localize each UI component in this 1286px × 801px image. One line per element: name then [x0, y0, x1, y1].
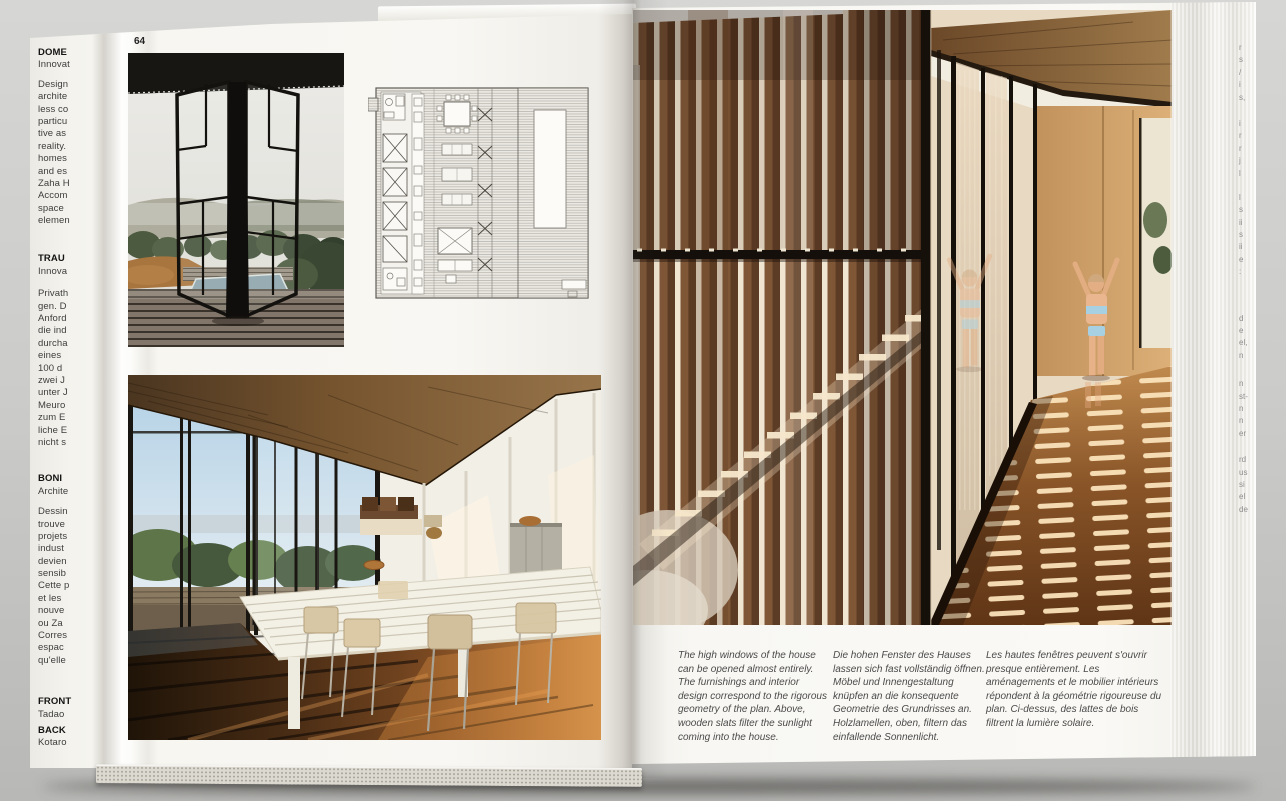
clipped-text-line: indust — [38, 543, 88, 555]
clipped-text-line: espac — [38, 642, 88, 654]
clipped-letter-fragment: e — [1239, 325, 1259, 337]
clipped-letter-fragment: s, — [1239, 92, 1259, 104]
clipped-text-line: Kotaro — [38, 737, 88, 749]
clipped-text-line: Dessin — [38, 506, 88, 518]
clipped-letter-fragment: r — [1239, 42, 1259, 54]
horizontal-rail — [633, 250, 925, 262]
clipped-text-line: BACK — [38, 725, 88, 737]
clipped-letter-fragment: j — [1239, 155, 1259, 167]
clipped-letter-fragment: rd — [1239, 454, 1259, 466]
clipped-letter-fragment: st- — [1239, 391, 1259, 403]
left-margin-clipped-text: DOMEInnovatDesignarchiteless coparticuti… — [38, 47, 88, 750]
left-page: DOMEInnovatDesignarchiteless coparticuti… — [30, 12, 632, 768]
clipped-text-line: and es — [38, 166, 88, 178]
clipped-text-line: Anford — [38, 313, 88, 325]
clipped-letter-fragment: er — [1239, 428, 1259, 440]
clipped-text-line: archite — [38, 91, 88, 103]
floor-plan-drawing — [368, 82, 602, 304]
clipped-text-line: homes — [38, 153, 88, 165]
left-door-frame — [177, 82, 229, 316]
caption-german: Die hohen Fenster des Hauses lassen sich… — [833, 649, 985, 744]
clipped-text-line: 100 d — [38, 363, 88, 375]
clipped-text-line: TRAU — [38, 253, 88, 265]
clipped-letter-fragment: si — [1239, 479, 1259, 491]
clipped-text-line: tive as — [38, 128, 88, 140]
clipped-text-line: Meuro — [38, 400, 88, 412]
kitchen-counter — [510, 516, 562, 579]
clipped-text-line: elemen — [38, 215, 88, 227]
clipped-letter-fragment: n — [1239, 350, 1259, 362]
caption-block: The high windows of the house can be ope… — [632, 649, 1256, 749]
clipped-text-line: Tadao — [38, 709, 88, 721]
caption-french: Les hautes fenêtres peuvent s'ouvrir pre… — [986, 649, 1162, 731]
clipped-text-line: space — [38, 203, 88, 215]
clipped-letter-fragment: el, — [1239, 337, 1259, 349]
clipped-text-line: Cette p — [38, 580, 88, 592]
clipped-text-line: et les — [38, 593, 88, 605]
right-edge-clipped-text: rs/is,irrjllsiisiie:deel,nnst-nnerrdussi… — [1239, 42, 1259, 516]
clipped-letter-fragment: r — [1239, 143, 1259, 155]
clipped-text-line: trouve — [38, 519, 88, 531]
clipped-text-line: Innova — [38, 266, 88, 278]
clipped-letter-fragment: de — [1239, 504, 1259, 516]
clipped-letter-fragment: s — [1239, 204, 1259, 216]
caption-english: The high windows of the house can be ope… — [678, 649, 830, 744]
clipped-text-line: less co — [38, 104, 88, 116]
clipped-text-line: qu'elle — [38, 655, 88, 667]
clipped-text-line: Corres — [38, 630, 88, 642]
clipped-letter-fragment: : — [1239, 266, 1259, 278]
clipped-letter-fragment: n — [1239, 378, 1259, 390]
book-spread: DOMEInnovatDesignarchiteless coparticuti… — [0, 0, 1286, 801]
clipped-letter-fragment: / — [1239, 67, 1259, 79]
clipped-text-line: particu — [38, 116, 88, 128]
clipped-text-line: reality. — [38, 141, 88, 153]
clipped-text-line: FRONT — [38, 696, 88, 708]
clipped-letter-fragment: s — [1239, 54, 1259, 66]
clipped-text-line: Innovat — [38, 59, 88, 71]
clipped-letter-fragment: ii — [1239, 241, 1259, 253]
right-page: The high windows of the house can be ope… — [632, 2, 1256, 768]
clipped-letter-fragment: s — [1239, 229, 1259, 241]
clipped-text-line: projets — [38, 531, 88, 543]
clipped-text-line: zwei J — [38, 375, 88, 387]
clipped-text-line: Privath — [38, 288, 88, 300]
clipped-letter-fragment: l — [1239, 168, 1259, 180]
clipped-letter-fragment: d — [1239, 313, 1259, 325]
right-door-frame — [246, 82, 298, 316]
clipped-text-line: sensib — [38, 568, 88, 580]
clipped-text-line: Design — [38, 79, 88, 91]
clipped-text-line: eines — [38, 350, 88, 362]
clipped-letter-fragment: r — [1239, 130, 1259, 142]
clipped-text-line: Zaha H — [38, 178, 88, 190]
clipped-letter-fragment: i — [1239, 118, 1259, 130]
clipped-letter-fragment: i — [1239, 79, 1259, 91]
book-cover-edge — [96, 764, 642, 787]
interior-photo — [128, 375, 601, 740]
clipped-text-line: ou Za — [38, 618, 88, 630]
clipped-text-line: zum E — [38, 412, 88, 424]
clipped-text-line: durcha — [38, 338, 88, 350]
slat-corridor-photo — [633, 10, 1172, 625]
page-number: 64 — [134, 36, 145, 47]
clipped-letter-fragment: el — [1239, 491, 1259, 503]
clipped-text-line: unter J — [38, 387, 88, 399]
clipped-letter-fragment: n — [1239, 415, 1259, 427]
clipped-text-line: Accom — [38, 190, 88, 202]
clipped-letter-fragment: l — [1239, 192, 1259, 204]
clipped-letter-fragment: us — [1239, 467, 1259, 479]
clipped-text-line: nouve — [38, 605, 88, 617]
clipped-text-line: Archite — [38, 486, 88, 498]
clipped-text-line: devien — [38, 556, 88, 568]
clipped-text-line: nicht s — [38, 437, 88, 449]
clipped-text-line: gen. D — [38, 301, 88, 313]
pivot-doors-photo — [128, 53, 344, 347]
clipped-text-line: DOME — [38, 47, 88, 59]
clipped-text-line: liche E — [38, 425, 88, 437]
clipped-letter-fragment: e — [1239, 254, 1259, 266]
clipped-letter-fragment: ii — [1239, 217, 1259, 229]
clipped-letter-fragment: n — [1239, 403, 1259, 415]
clipped-text-line: BONI — [38, 473, 88, 485]
clipped-text-line: die ind — [38, 325, 88, 337]
